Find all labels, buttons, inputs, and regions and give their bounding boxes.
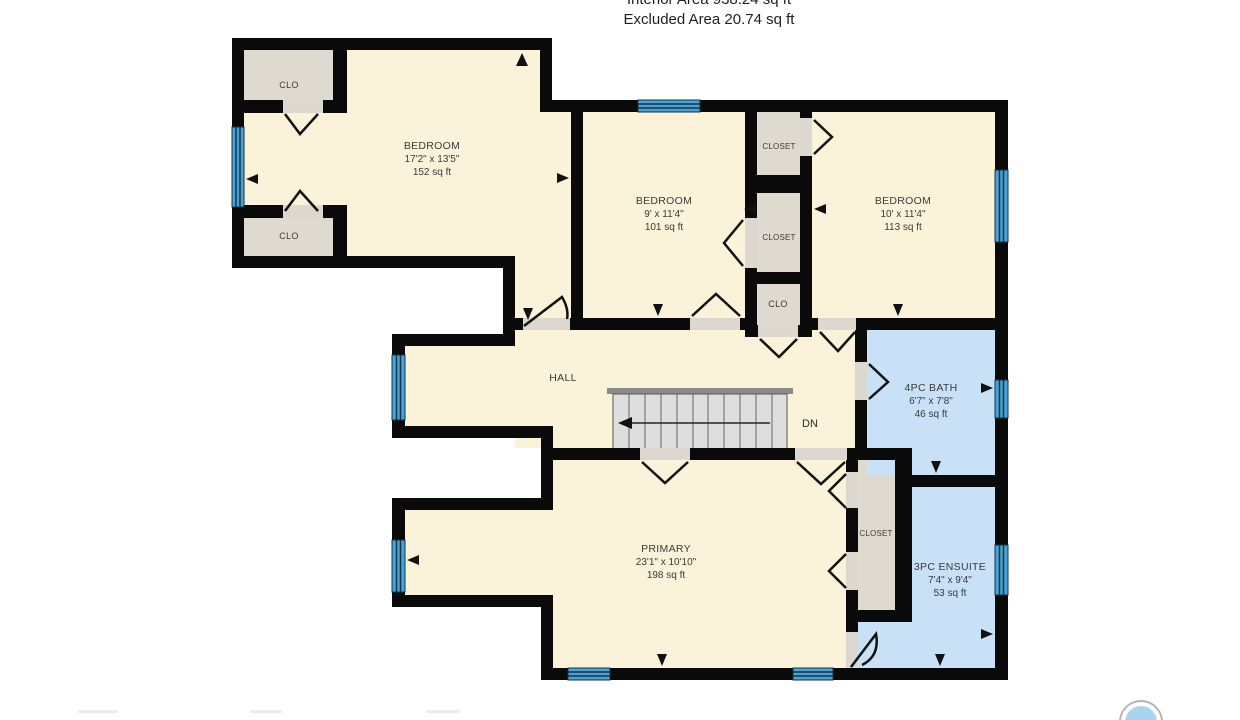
- footer-smudge-2: [250, 710, 282, 713]
- closet-nw-bottom-label: CLO: [279, 231, 298, 241]
- bedroom-ne-area: 113 sq ft: [884, 222, 922, 233]
- primary-name: PRIMARY: [641, 543, 691, 555]
- window-primary-alcove: [392, 540, 405, 592]
- primary-floor: [553, 460, 846, 668]
- ensuite-area: 53 sq ft: [934, 588, 967, 599]
- closet-mid-top-label: CLOSET: [762, 142, 795, 151]
- closet-nw-top-label: CLO: [279, 80, 298, 90]
- primary-dims: 23'1" x 10'10": [636, 557, 697, 568]
- window-bedroom-mid-top: [638, 100, 700, 112]
- floorplan-page: Interior Area 938.24 sq ft Excluded Area…: [0, 0, 1240, 720]
- room-fills: [244, 50, 995, 668]
- primary-area: 198 sq ft: [647, 570, 686, 581]
- brand-logo: [1120, 701, 1162, 720]
- window-bath: [995, 380, 1008, 418]
- window-bedroom-ne: [995, 170, 1008, 242]
- stairs-dn-label: DN: [802, 418, 818, 430]
- primary-alcove-floor: [405, 510, 565, 595]
- bath-dims: 6'7" x 7'8": [909, 396, 953, 407]
- bedroom-ne-name: BEDROOM: [875, 195, 931, 207]
- stair-box: [613, 394, 787, 450]
- bedroom-nw-floor-strip: [540, 112, 571, 268]
- ensuite-dims: 7'4" x 9'4": [928, 575, 972, 586]
- window-bedroom-nw: [232, 127, 244, 207]
- floor-plan: Interior Area 938.24 sq ft Excluded Area…: [0, 0, 1240, 720]
- window-primary-bottom-right: [793, 668, 833, 680]
- bedroom-nw-name: BEDROOM: [404, 140, 460, 152]
- bath-area: 46 sq ft: [915, 409, 948, 420]
- window-primary-bottom-left: [568, 668, 610, 680]
- closet-primary-label: CLOSET: [859, 529, 892, 538]
- bedroom-ne-dims: 10' x 11'4": [881, 209, 926, 220]
- bedroom-nw-area: 152 sq ft: [413, 167, 452, 178]
- footer-smudge-3: [426, 710, 460, 713]
- window-hall-alcove: [392, 355, 405, 420]
- closet-nw-top-floor: [244, 50, 333, 100]
- ensuite-name: 3PC ENSUITE: [914, 561, 986, 573]
- hall-name: HALL: [549, 372, 576, 384]
- bedroom-mid-area: 101 sq ft: [645, 222, 684, 233]
- interior-area-label: Interior Area 938.24 sq ft: [627, 0, 792, 8]
- excluded-area-label: Excluded Area 20.74 sq ft: [624, 11, 796, 28]
- closet-mid-middle-label: CLOSET: [762, 233, 795, 242]
- staircase: [607, 388, 793, 450]
- bedroom-nw-dims: 17'2" x 13'5": [405, 154, 460, 165]
- window-ensuite: [995, 545, 1008, 595]
- footer-smudge-1: [78, 710, 118, 713]
- stair-top-edge: [607, 388, 793, 394]
- bath-name: 4PC BATH: [905, 382, 958, 394]
- closet-mid-bottom-label: CLO: [768, 299, 787, 309]
- bedroom-mid-dims: 9' x 11'4": [644, 209, 684, 220]
- bedroom-mid-name: BEDROOM: [636, 195, 692, 207]
- footer-artifacts: [78, 701, 1162, 720]
